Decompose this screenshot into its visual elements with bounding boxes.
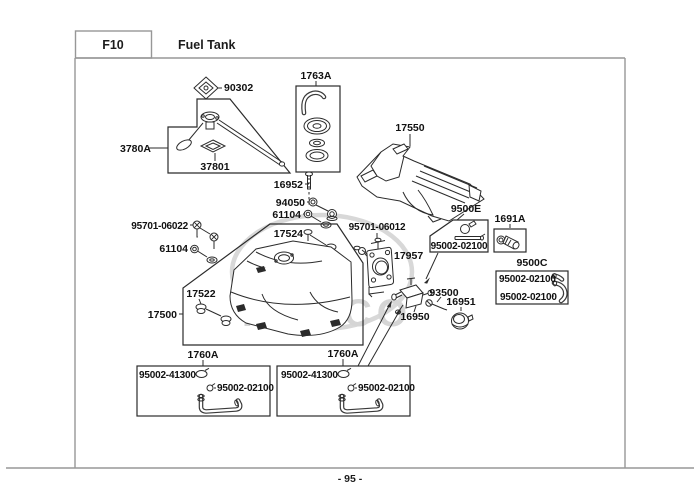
label-box-left-row1: 95002-41300 xyxy=(139,370,196,381)
part-box-filler-cap-1763a xyxy=(296,81,340,172)
label-box-left-row2: 95002-02100 xyxy=(217,383,274,394)
page-number: - 95 - xyxy=(338,473,363,485)
label-9500c-row2: 95002-02100 xyxy=(500,292,557,303)
page-frame xyxy=(6,31,694,468)
part-box-plug-1691a xyxy=(494,224,526,252)
label-37801: 37801 xyxy=(200,161,229,173)
fuel-tank-exploded-diagram: KYMCO F10 Fuel Tank - 95 - xyxy=(0,0,700,495)
label-16952: 16952 xyxy=(274,179,303,191)
part-nut-61104-left xyxy=(190,245,217,263)
label-17524: 17524 xyxy=(274,228,303,240)
label-94050: 94050 xyxy=(276,197,305,209)
label-17522: 17522 xyxy=(186,288,215,300)
label-16950: 16950 xyxy=(400,311,429,323)
label-95701-06022: 95701-06022 xyxy=(131,221,188,232)
label-9500e: 9500E xyxy=(451,203,481,215)
label-17550: 17550 xyxy=(395,122,424,134)
label-61104-top: 61104 xyxy=(272,209,301,221)
label-1691a: 1691A xyxy=(495,213,526,225)
label-9500c-row1: 95002-02100 xyxy=(499,274,556,285)
part-fuel-meter-90302 xyxy=(194,77,222,99)
part-strainer-cup-16951 xyxy=(452,307,474,329)
label-17957: 17957 xyxy=(394,250,423,262)
part-dampers-17522 xyxy=(196,299,231,326)
parts-catalog-page: KYMCO F10 Fuel Tank - 95 - xyxy=(0,0,700,495)
label-1763a: 1763A xyxy=(301,70,332,82)
label-9500c: 9500C xyxy=(517,257,548,269)
label-1760a-right: 1760A xyxy=(328,348,359,360)
label-17500: 17500 xyxy=(148,309,177,321)
label-90302: 90302 xyxy=(224,82,253,94)
section-title: Fuel Tank xyxy=(178,38,235,52)
label-9500e-part: 95002-02100 xyxy=(431,241,488,252)
label-16951: 16951 xyxy=(446,296,475,308)
section-code: F10 xyxy=(102,38,124,52)
part-fuel-tank-body xyxy=(230,241,352,337)
label-1760a-left: 1760A xyxy=(188,349,219,361)
label-3780a: 3780A xyxy=(120,143,151,155)
label-box-right-row2: 95002-02100 xyxy=(358,383,415,394)
label-95701-06012: 95701-06012 xyxy=(349,222,406,233)
part-bracket-17957 xyxy=(362,247,394,297)
label-box-right-row1: 95002-41300 xyxy=(281,370,338,381)
label-61104-left: 61104 xyxy=(159,243,188,255)
